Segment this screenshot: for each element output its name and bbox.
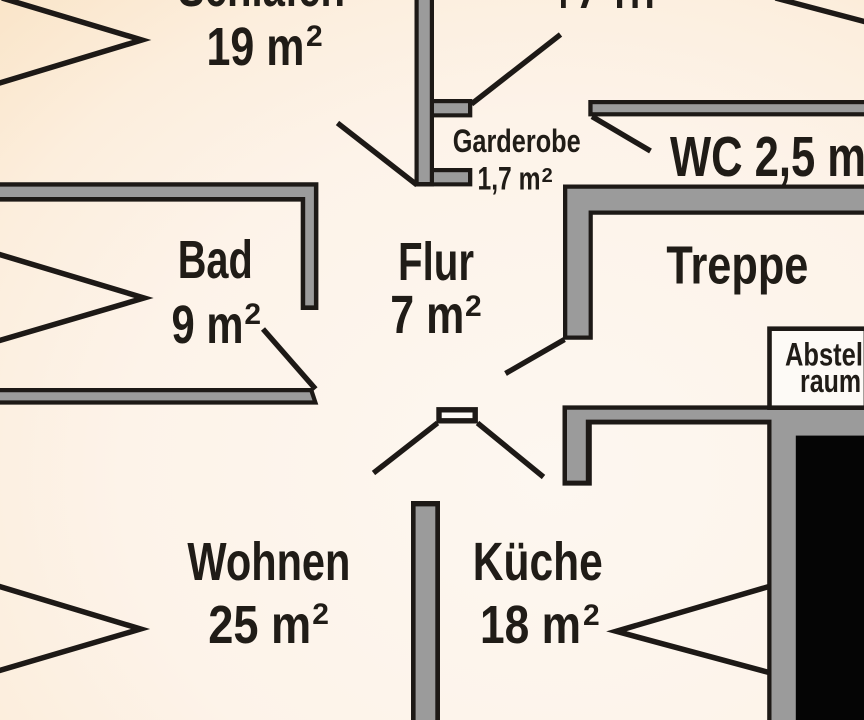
svg-text:Bad: Bad <box>178 230 253 290</box>
svg-text:19 m: 19 m <box>207 17 305 77</box>
svg-text:2: 2 <box>583 599 600 632</box>
svg-text:9 m: 9 m <box>172 295 244 355</box>
svg-text:Küche: Küche <box>473 532 603 592</box>
svg-text:2: 2 <box>465 290 482 323</box>
svg-text:1,7 m: 1,7 m <box>478 161 541 197</box>
svg-text:18 m: 18 m <box>480 595 581 655</box>
svg-text:Schlafen: Schlafen <box>178 0 345 18</box>
svg-text:2: 2 <box>312 598 329 631</box>
svg-text:25 m: 25 m <box>208 595 311 655</box>
svg-text:2: 2 <box>244 298 261 331</box>
svg-text:Garderobe: Garderobe <box>453 123 581 159</box>
svg-text:2: 2 <box>542 165 553 187</box>
svg-text:Treppe: Treppe <box>666 236 808 296</box>
svg-text:raum: raum <box>800 363 861 399</box>
svg-text:Wohnen: Wohnen <box>187 532 350 592</box>
svg-text:Flur: Flur <box>398 232 474 292</box>
svg-text:2: 2 <box>306 20 323 53</box>
svg-text:7 m: 7 m <box>390 285 464 345</box>
svg-text:WC 2,5 m: WC 2,5 m <box>670 125 864 189</box>
